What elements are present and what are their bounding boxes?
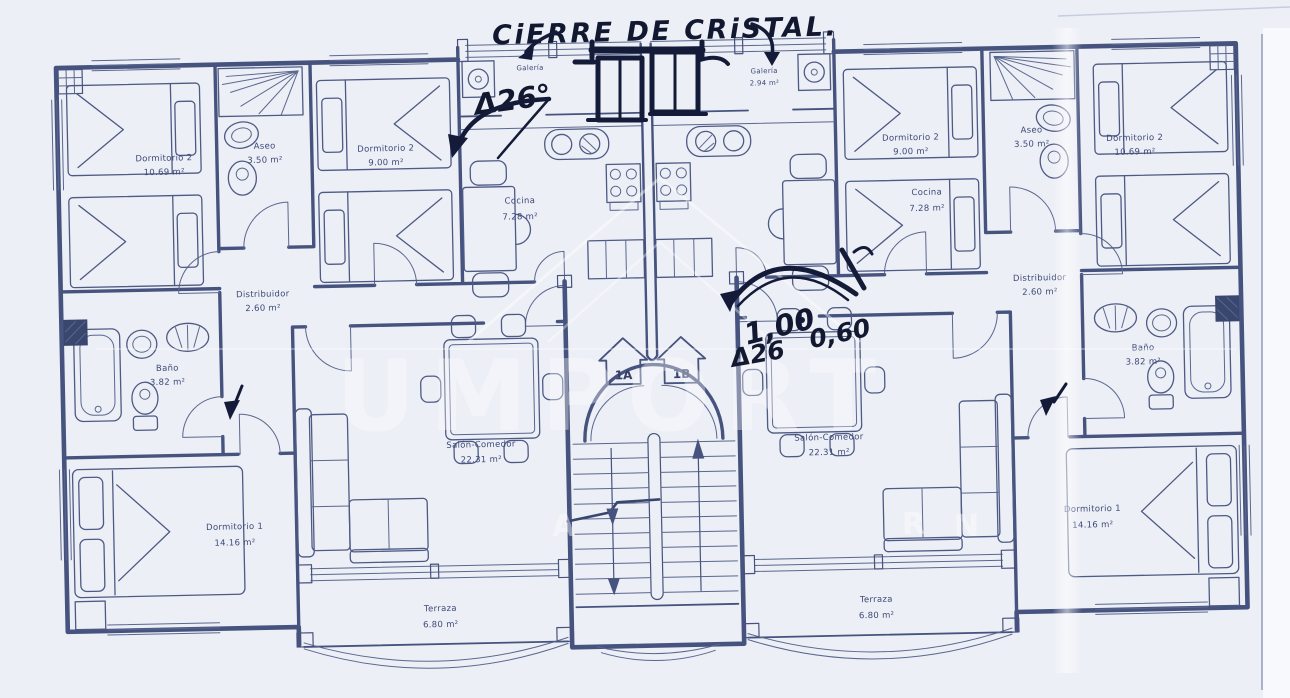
label-galeria-left: Galería — [516, 64, 543, 73]
label-dorm1-left-area: 14.16 m² — [214, 538, 255, 549]
scanned-floor-plan-document: 1A 1B Dormitorio 2 10.69 m² Aseo 3.50 m²… — [0, 0, 1290, 698]
label-terraza-right: Terraza — [859, 595, 893, 606]
label-dorm2b-right-area: 9.00 m² — [893, 147, 929, 158]
label-galeria-right-area: 2.94 m² — [750, 79, 780, 88]
label-cocina-left: Cocina — [505, 196, 536, 207]
label-bano-left: Baño — [156, 363, 179, 373]
label-dorm2b-right: Dormitorio 2 — [882, 133, 939, 144]
label-dorm2a-right: Dormitorio 2 — [1106, 133, 1163, 144]
label-cocina-right-area: 7.28 m² — [909, 203, 945, 214]
paper-fold-crease — [1052, 28, 1082, 673]
label-bano-left-area: 3.82 m² — [150, 377, 186, 388]
label-aseo-right-area: 3.50 m² — [1014, 139, 1050, 150]
label-salon-left-area: 22.31 m² — [461, 455, 502, 466]
label-dorm2b-left: Dormitorio 2 — [357, 144, 414, 155]
label-aseo-left: Aseo — [254, 141, 276, 151]
label-distribuidor-left: Distribuidor — [236, 289, 290, 300]
label-aseo-left-area: 3.50 m² — [247, 155, 283, 166]
label-dorm1-left: Dormitorio 1 — [206, 522, 263, 533]
watermark-fragment: A — [552, 509, 576, 544]
label-terraza-right-area: 6.80 m² — [859, 611, 895, 622]
label-dorm2a-left: Dormitorio 2 — [135, 153, 192, 164]
paper-right-margin — [1263, 28, 1290, 698]
label-dorm2a-right-area: 10.69 m² — [1114, 147, 1155, 158]
label-distribuidor-left-area: 2.60 m² — [245, 303, 281, 314]
label-cocina-right: Cocina — [911, 187, 942, 198]
floor-plan-drawing: 1A 1B Dormitorio 2 10.69 m² Aseo 3.50 m²… — [0, 0, 1290, 698]
label-bano-right-area: 3.82 m² — [1126, 357, 1162, 368]
watermark-text: UMPORT — [336, 340, 890, 454]
label-dorm2a-left-area: 10.69 m² — [144, 167, 185, 178]
handwritten-dim-dot — [799, 317, 805, 323]
label-dorm2b-left-area: 9.00 m² — [368, 158, 404, 169]
watermark-fragment: R — [902, 507, 925, 542]
label-terraza-left-area: 6.80 m² — [423, 620, 459, 631]
watermark-fragment: N — [954, 509, 979, 544]
label-galeria-right: Galería — [751, 67, 778, 76]
label-terraza-left: Terraza — [423, 604, 457, 615]
label-aseo-right: Aseo — [1020, 125, 1042, 135]
label-cocina-left-area: 7.28 m² — [502, 212, 538, 223]
